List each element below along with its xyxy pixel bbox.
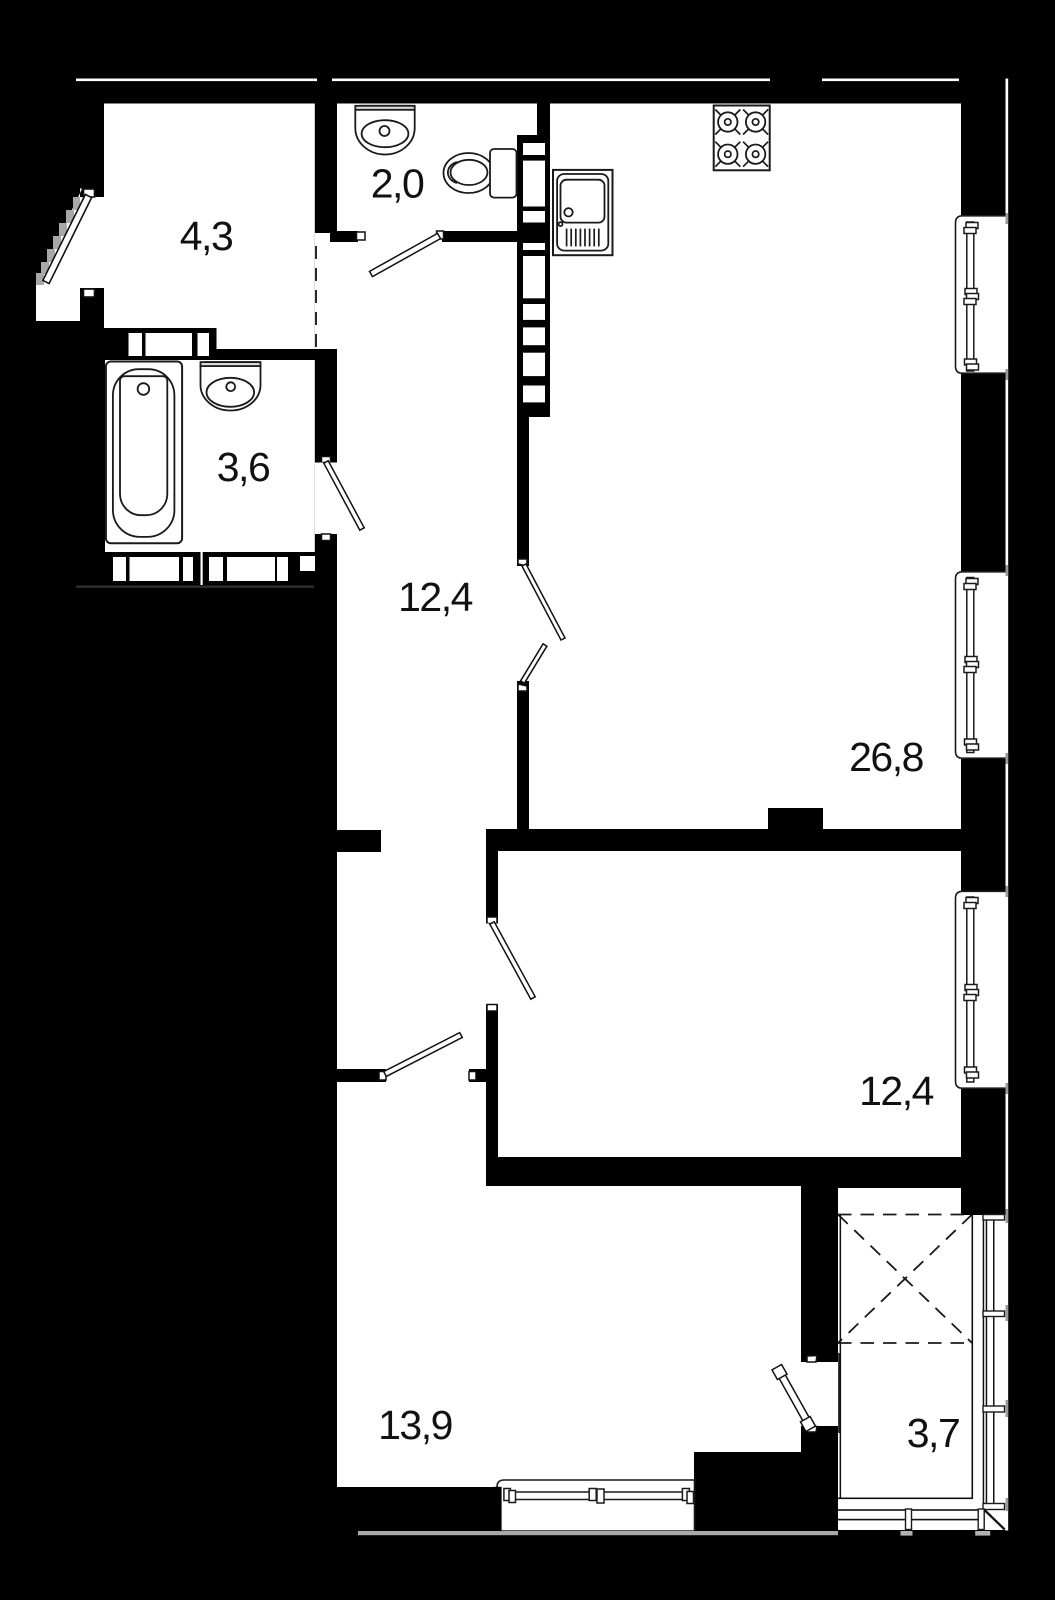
svg-text:12,4: 12,4	[398, 574, 472, 620]
svg-text:26,8: 26,8	[849, 734, 923, 780]
svg-text:3,7: 3,7	[907, 1410, 960, 1456]
svg-text:2,0: 2,0	[371, 161, 424, 207]
svg-text:3,6: 3,6	[217, 444, 270, 490]
svg-text:13,9: 13,9	[378, 1402, 452, 1448]
svg-text:12,4: 12,4	[859, 1068, 933, 1114]
svg-text:4,3: 4,3	[180, 213, 233, 259]
